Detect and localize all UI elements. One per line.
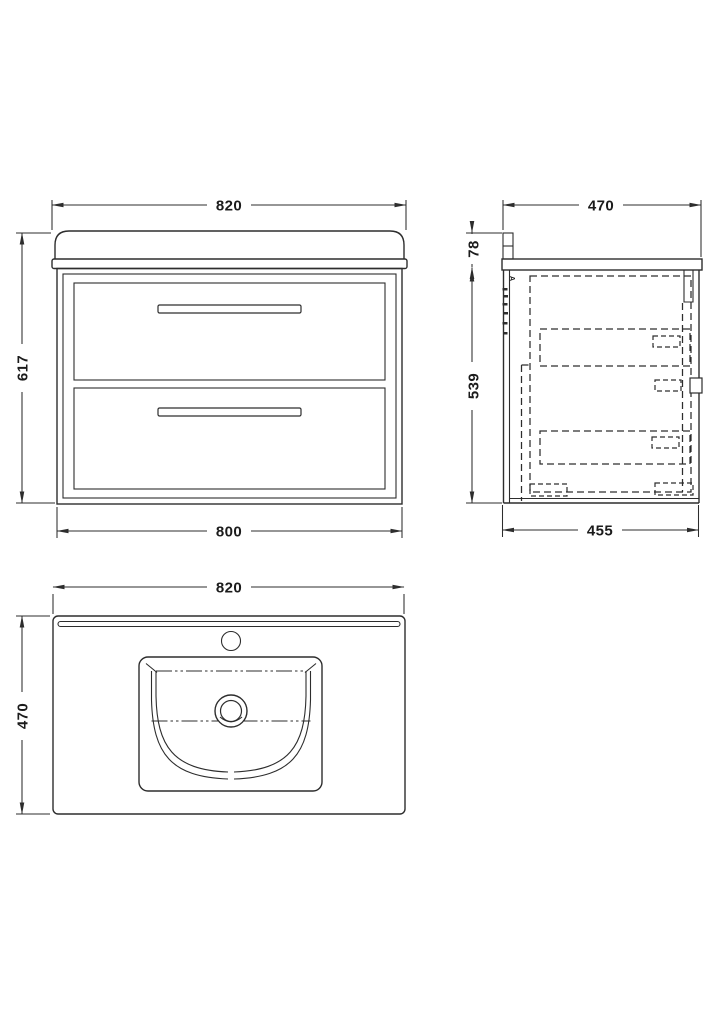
front-top-width-dimension: 820	[52, 197, 406, 230]
bottom-fixing-right	[655, 483, 693, 495]
side-upstand-dimension: 78	[465, 222, 502, 278]
basin-lip	[52, 259, 407, 269]
wall-hanging-batten	[684, 270, 693, 302]
back-edge-lip	[58, 622, 400, 627]
waste-drain	[215, 695, 247, 727]
plan-view: 820	[14, 579, 405, 814]
hidden-internal-details	[522, 276, 694, 501]
drawer-gap-section	[690, 378, 702, 393]
front-view: 820 617 800	[14, 197, 407, 541]
plan-width-top-label: 820	[216, 580, 242, 597]
side-height-dimension: 539	[465, 270, 502, 503]
drawer-upper-front	[74, 283, 385, 380]
runner-clip-upper	[653, 336, 680, 347]
plan-width-dimension: 820	[53, 579, 404, 614]
side-depth-bottom-label: 455	[587, 523, 613, 540]
tap-hole	[222, 632, 241, 651]
front-bottom-width-dimension: 800	[57, 507, 402, 541]
cabinet-outer-frame	[57, 269, 402, 505]
front-width-top-label: 820	[216, 198, 242, 215]
technical-drawing-canvas: 820 617 800	[0, 0, 724, 1024]
drain-inner-hole	[221, 701, 242, 722]
front-width-bottom-label: 800	[216, 524, 242, 541]
basin-top	[55, 231, 404, 259]
side-top-depth-dimension: 470	[503, 197, 701, 257]
drawer-lower-front	[74, 388, 385, 489]
side-cabinet-height-label: 539	[466, 373, 483, 399]
plan-depth-label: 470	[15, 703, 32, 729]
bottom-fixing-left	[530, 484, 567, 496]
drawer-upper-handle	[158, 305, 301, 313]
side-bottom-depth-dimension: 455	[503, 505, 699, 540]
runner-clip-middle	[655, 380, 681, 391]
back-panel-annotation: A	[503, 276, 516, 335]
side-panel-note-label: A	[508, 276, 515, 281]
carcass-hidden-outline	[530, 276, 691, 492]
side-upstand-height-label: 78	[466, 240, 483, 258]
countertop-section	[502, 259, 702, 270]
front-height-dimension: 617	[14, 233, 55, 503]
runner-clip-lower	[652, 437, 679, 448]
front-height-label: 617	[15, 355, 32, 381]
drawer-lower-handle	[158, 408, 301, 416]
side-view: 470 A	[465, 197, 702, 540]
back-rail-hidden	[522, 365, 531, 501]
side-depth-top-label: 470	[588, 198, 614, 215]
vanity-drawing-svg: 820 617 800	[0, 0, 724, 1024]
plan-depth-dimension: 470	[14, 616, 50, 814]
